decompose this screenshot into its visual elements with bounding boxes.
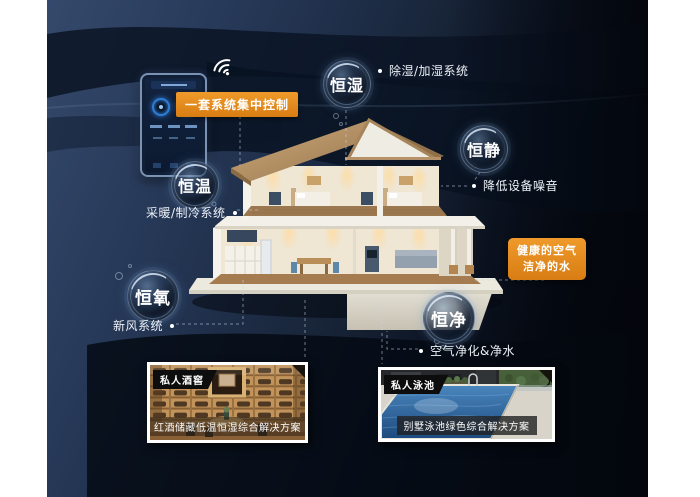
pool-caption: 别墅泳池绿色综合解决方案	[397, 416, 537, 435]
connector-dot	[472, 184, 476, 188]
label-fresh-air-system: 新风系统	[113, 317, 174, 334]
corner-fold-icon	[539, 370, 552, 383]
connector-dot	[233, 211, 237, 215]
highlight-line1: 健康的空气	[510, 243, 584, 259]
label-reduce-equipment-noise: 降低设备噪音	[472, 177, 558, 194]
healthy-air-water-box: 健康的空气 洁净的水	[508, 238, 586, 280]
bubble-constant-oxygen: 恒氧	[127, 270, 179, 322]
corner-fold-icon	[292, 365, 305, 378]
label-air-water-purification: 空气净化&净水	[419, 342, 515, 359]
label-heating-cooling-system: 采暖/制冷系统	[146, 204, 237, 221]
wine-cellar-card: 私人酒窖 红酒储藏低温恒湿综合解决方案	[147, 362, 308, 443]
connector-dot	[378, 69, 382, 73]
background-panel: 一套系统集中控制 恒湿 恒静 恒温 恒氧 恒净 除湿/加湿系统 降低设备噪音 采…	[47, 0, 648, 497]
pool-card: 私人泳池 别墅泳池绿色综合解决方案	[378, 367, 555, 442]
bubble-label: 恒温	[178, 173, 212, 197]
label-dehumidify-humidify-system: 除湿/加湿系统	[378, 62, 469, 79]
poster-canvas: 一套系统集中控制 恒湿 恒静 恒温 恒氧 恒净 除湿/加湿系统 降低设备噪音 采…	[0, 0, 700, 497]
bubble-constant-temperature: 恒温	[171, 161, 219, 209]
bubble-label: 恒氧	[135, 284, 171, 309]
bubble-label: 恒静	[467, 137, 501, 161]
central-control-label: 一套系统集中控制	[176, 92, 298, 117]
bubble-label: 恒净	[431, 306, 467, 331]
connector-dot	[170, 324, 174, 328]
highlight-line2: 洁净的水	[510, 259, 584, 275]
bubble-constant-humidity: 恒湿	[323, 60, 371, 108]
pool-photo: 私人泳池 别墅泳池绿色综合解决方案	[381, 370, 552, 439]
wine-cellar-photo: 私人酒窖 红酒储藏低温恒湿综合解决方案	[150, 365, 305, 440]
bubble-label: 恒湿	[330, 72, 364, 96]
wine-cellar-caption: 红酒储藏低温恒湿综合解决方案	[150, 417, 305, 436]
controller-screen-header	[151, 81, 196, 89]
bubble-constant-quiet: 恒静	[460, 125, 508, 173]
controller-dial	[152, 98, 170, 116]
bubble-constant-purity: 恒净	[423, 292, 475, 344]
connector-dot	[419, 349, 423, 353]
pool-tag: 私人泳池	[384, 375, 448, 394]
wine-cellar-tag: 私人酒窖	[153, 370, 217, 389]
